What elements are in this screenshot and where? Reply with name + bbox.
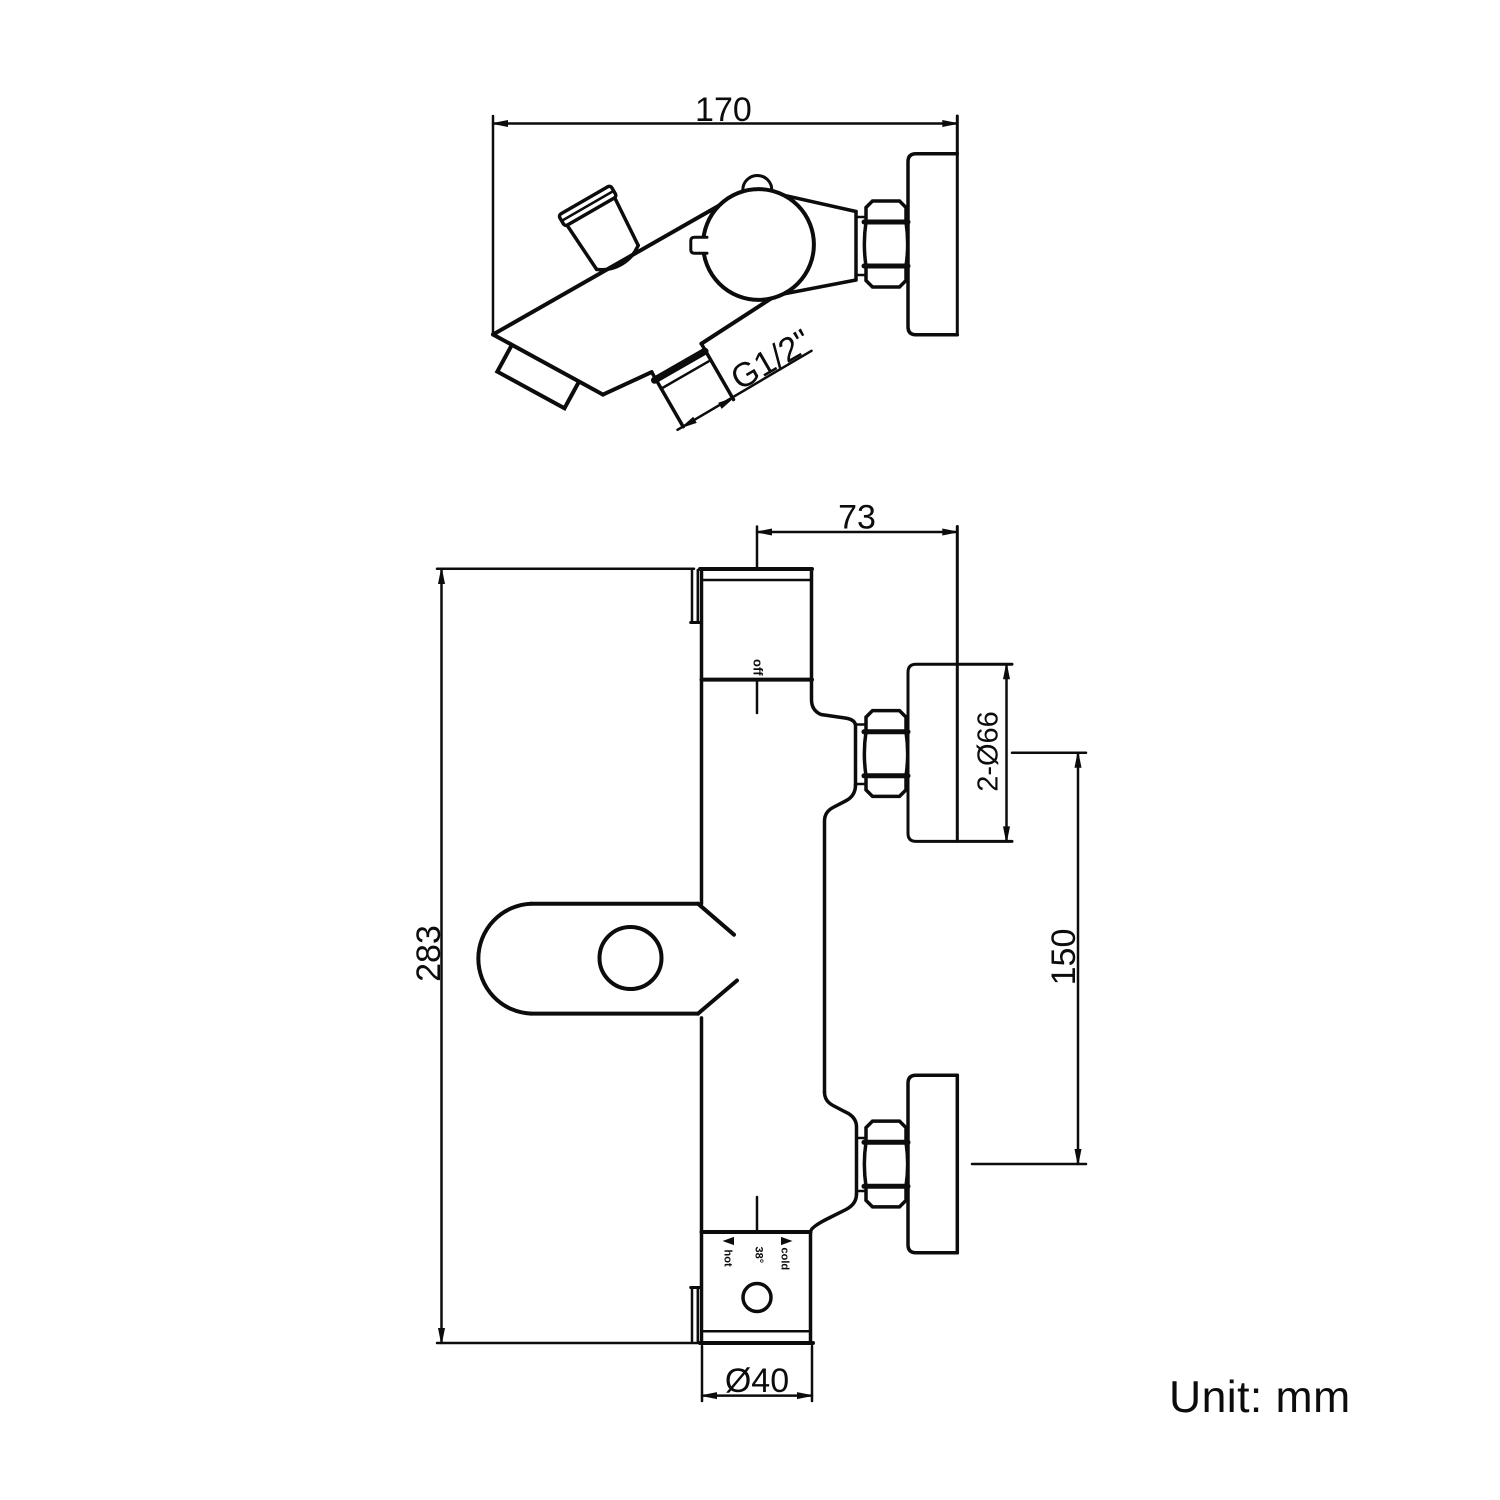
- svg-text:283: 283: [410, 925, 448, 982]
- svg-text:cold: cold: [779, 1248, 791, 1271]
- svg-text:150: 150: [1045, 929, 1083, 986]
- svg-text:38°: 38°: [753, 1247, 765, 1264]
- svg-text:off: off: [751, 659, 766, 676]
- svg-text:hot: hot: [722, 1250, 734, 1267]
- svg-text:Ø40: Ø40: [725, 1362, 789, 1400]
- svg-text:170: 170: [695, 91, 752, 129]
- svg-text:73: 73: [838, 499, 876, 537]
- svg-text:Unit: mm: Unit: mm: [1169, 1373, 1351, 1422]
- svg-text:2-Ø66: 2-Ø66: [973, 711, 1005, 792]
